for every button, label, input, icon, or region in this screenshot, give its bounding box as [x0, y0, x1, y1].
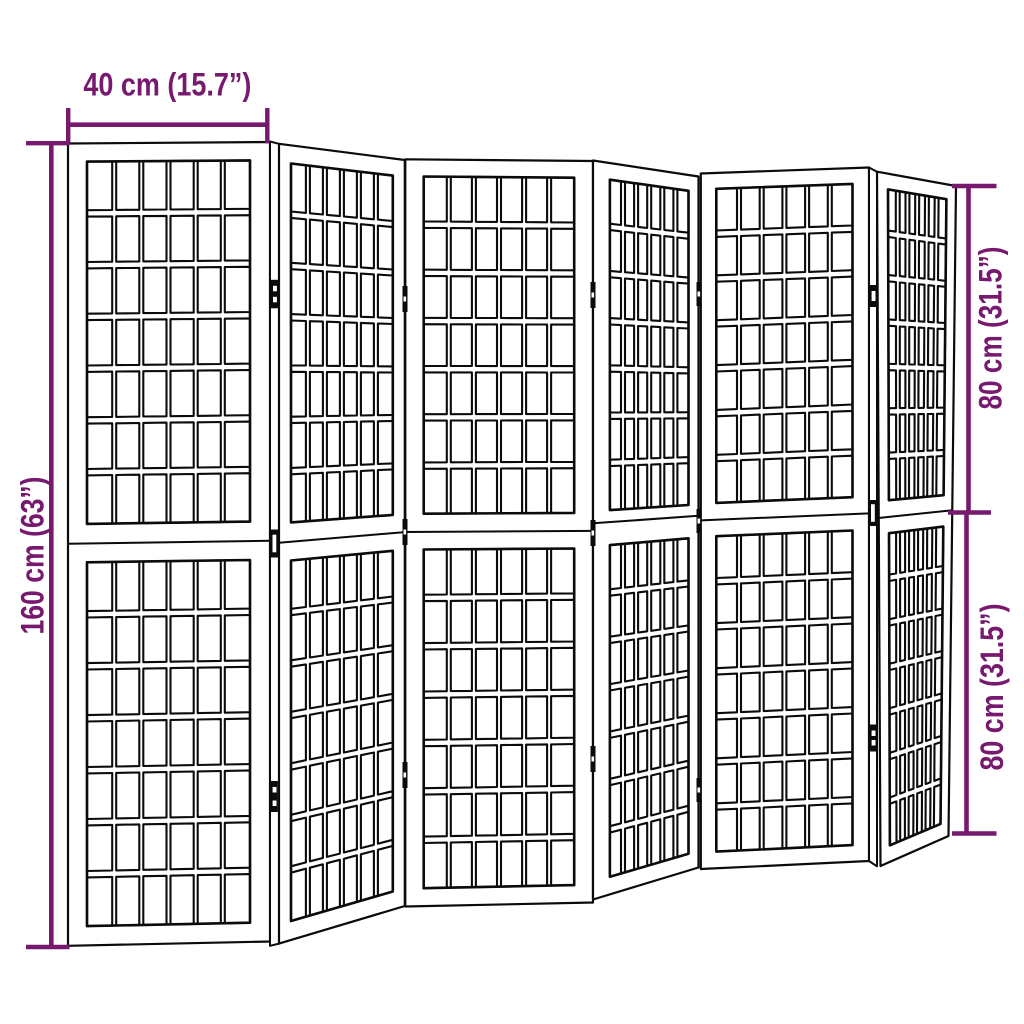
- svg-text:160 cm (63”): 160 cm (63”): [15, 477, 51, 635]
- svg-text:80 cm (31.5”): 80 cm (31.5”): [973, 247, 1009, 410]
- svg-text:80 cm (31.5”): 80 cm (31.5”): [974, 604, 1010, 771]
- svg-text:40 cm (15.7”): 40 cm (15.7”): [83, 67, 251, 103]
